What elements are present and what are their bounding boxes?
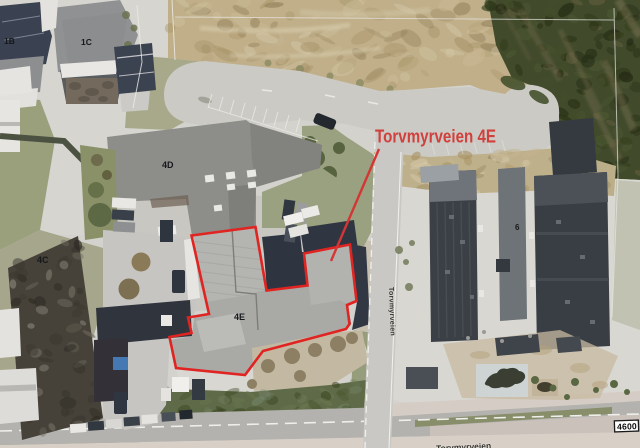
svg-text:Torvmyrveien: Torvmyrveien <box>387 287 398 336</box>
svg-text:4600: 4600 <box>617 421 637 432</box>
svg-text:1B: 1B <box>4 36 15 46</box>
svg-text:4E: 4E <box>234 312 245 322</box>
svg-text:4C: 4C <box>37 255 49 265</box>
svg-text:1C: 1C <box>81 37 92 47</box>
svg-text:6: 6 <box>515 223 520 232</box>
svg-text:4D: 4D <box>162 160 174 170</box>
svg-text:Torvmyrveien 4E: Torvmyrveien 4E <box>375 125 496 146</box>
